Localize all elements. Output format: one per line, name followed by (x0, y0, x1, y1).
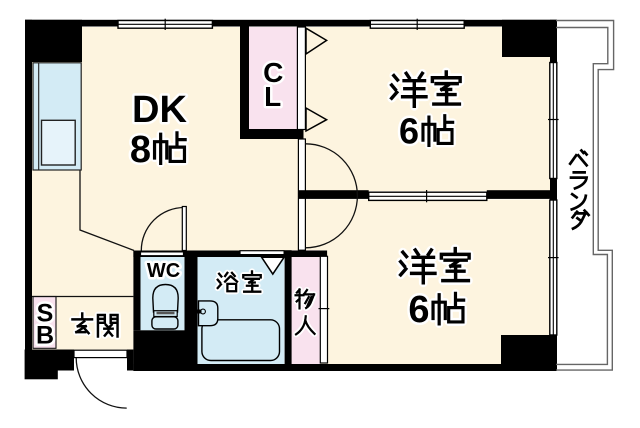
svg-text:WC: WC (147, 260, 180, 282)
svg-text:6: 6 (399, 111, 419, 152)
svg-text:8: 8 (130, 129, 151, 171)
svg-text:6: 6 (408, 289, 429, 331)
svg-text:B: B (36, 322, 54, 350)
svg-text:L: L (264, 81, 281, 112)
svg-text:DK: DK (132, 89, 187, 131)
